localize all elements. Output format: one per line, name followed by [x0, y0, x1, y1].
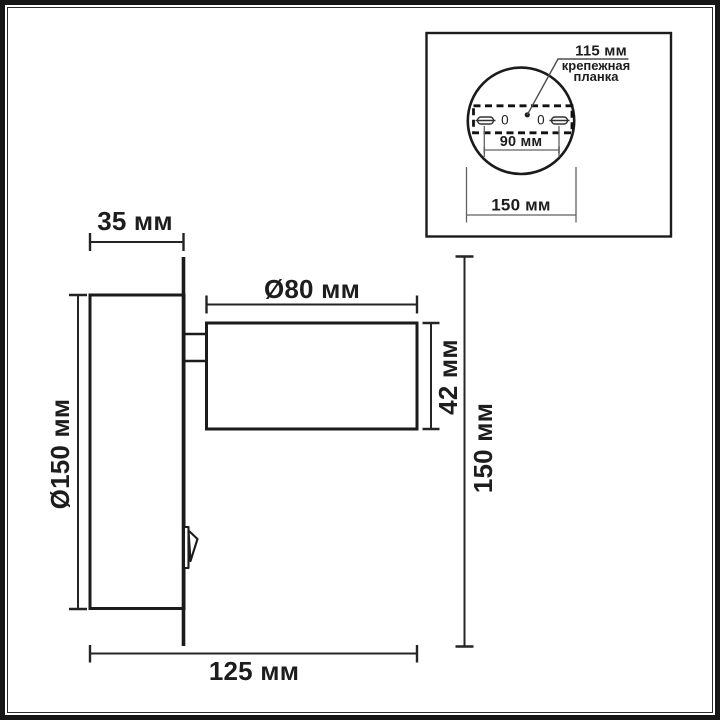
- power-switch: [184, 527, 198, 568]
- dim-overall-depth-label: 125 мм: [209, 658, 299, 684]
- dim-head-length-label: 42 мм: [435, 339, 461, 415]
- dim-backplate-diameter-label: Ø150 мм: [47, 399, 73, 510]
- backplate-outline: [90, 295, 184, 609]
- lamp-side-view: [90, 257, 417, 646]
- mount-plate-note-line2: планка: [562, 72, 630, 83]
- dim-head-diameter-label: Ø80 мм: [264, 276, 360, 302]
- dim-backplate-depth-label: 35 мм: [97, 208, 173, 234]
- dim-hole-spacing-label: 90 мм: [500, 134, 543, 149]
- dim-mount-plate-width-label: 115 мм: [575, 44, 627, 59]
- lamp-head-outline: [207, 323, 418, 429]
- hole-mark-right: 0: [537, 113, 545, 127]
- hole-mark-left: 0: [501, 113, 509, 127]
- dim-plate-diameter-label: 150 мм: [491, 197, 550, 214]
- swivel-joint: [185, 334, 207, 361]
- mount-plate-note: крепежная планка: [562, 61, 630, 82]
- drawing-linework: [0, 0, 720, 720]
- dim-overall-height-label: 150 мм: [470, 403, 496, 493]
- dimension-drawing: 35 мм Ø80 мм 42 мм Ø150 мм 150 мм 125 мм…: [0, 0, 720, 720]
